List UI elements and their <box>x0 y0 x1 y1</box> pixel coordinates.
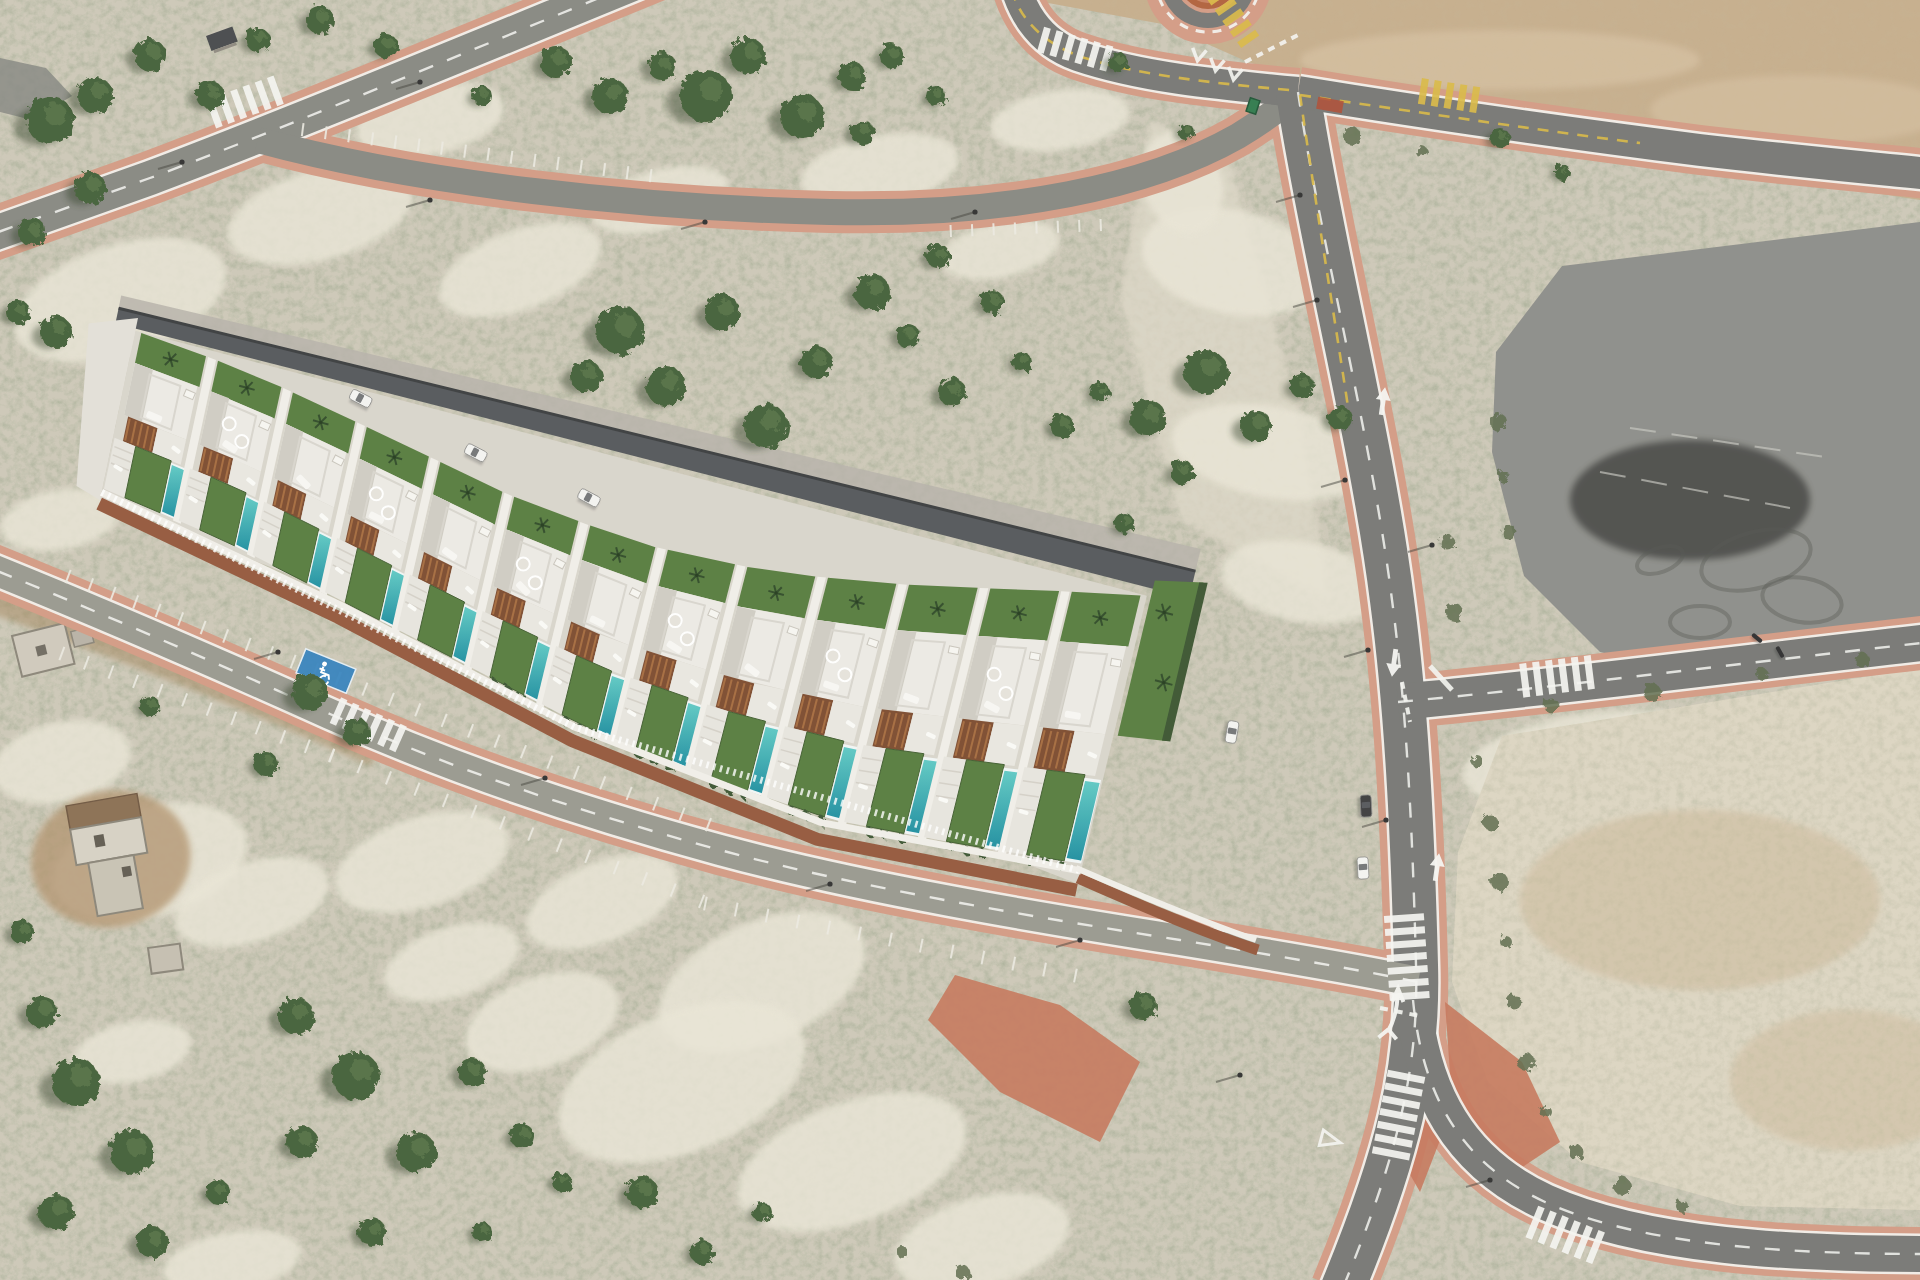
aerial-scene <box>0 0 1920 1280</box>
atmospheric-haze <box>0 0 1920 1280</box>
aerial-photo-villa-development <box>0 0 1920 1280</box>
